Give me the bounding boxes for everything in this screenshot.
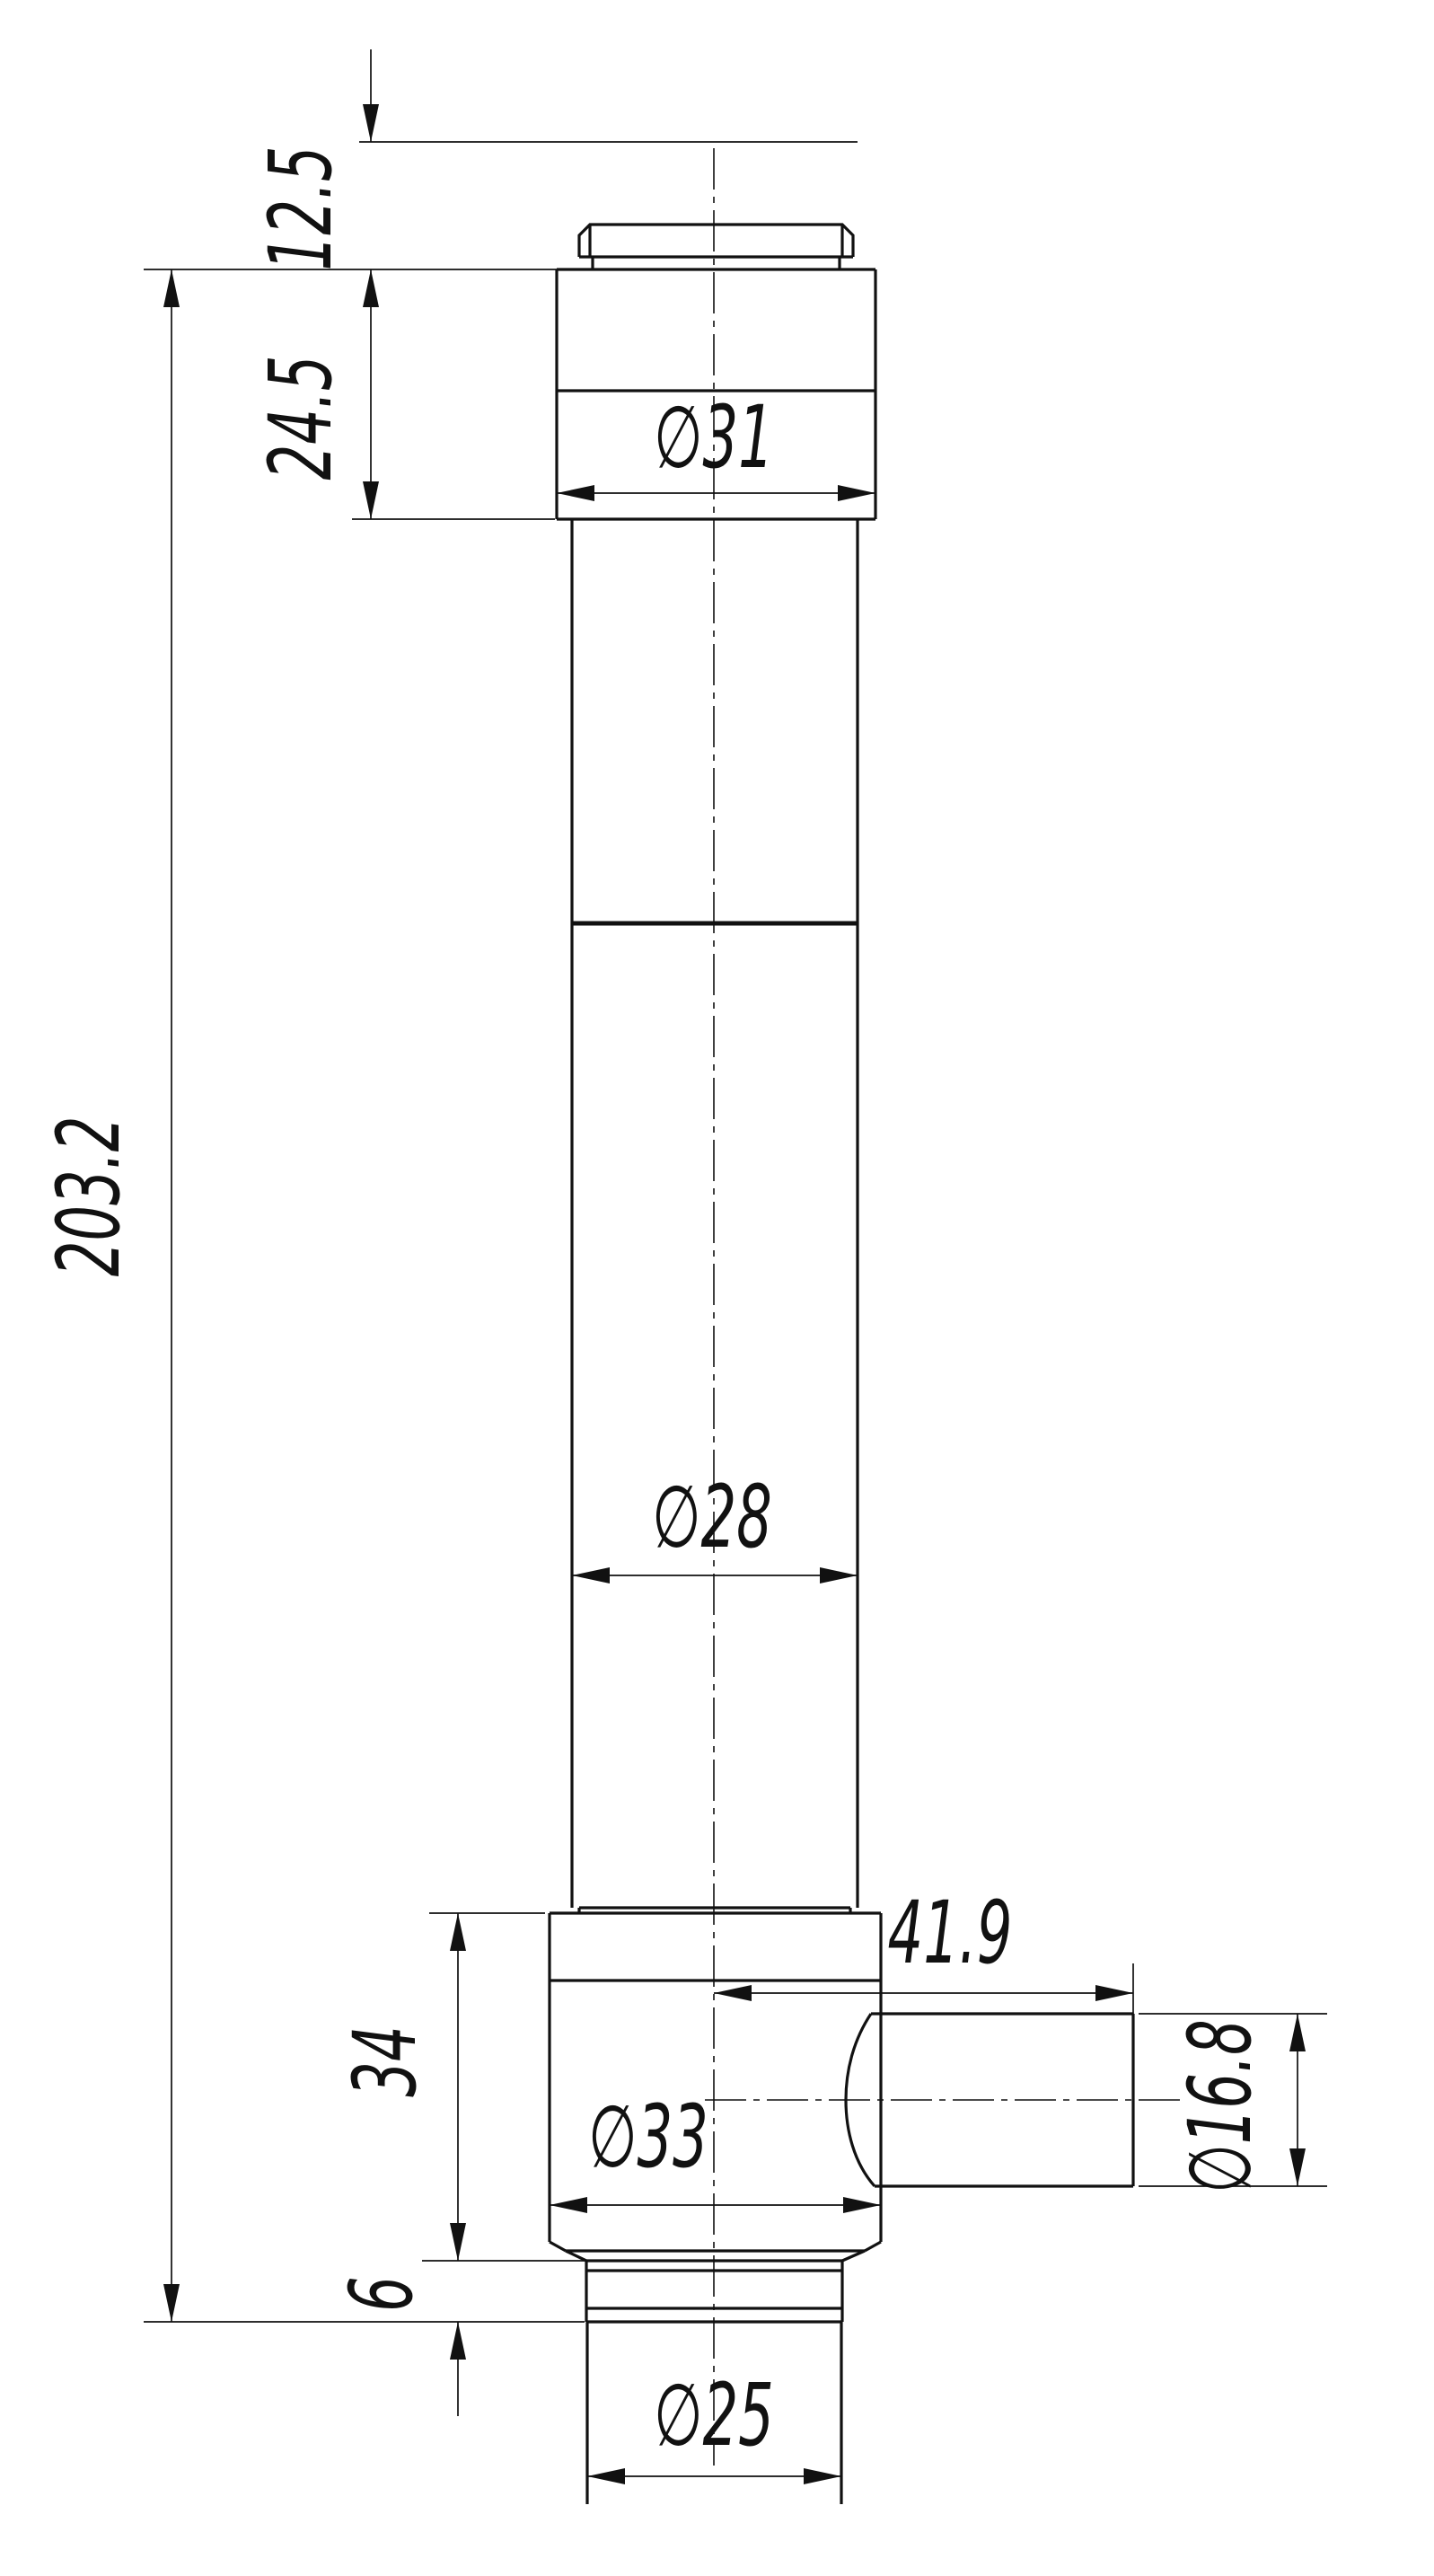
technical-drawing: 12.5 24.5 ∅31 203.2 ∅28 41.9 [0, 0, 1434, 2576]
dim-lower-block-height-label: 34 [336, 2025, 435, 2096]
dim-cap-height-label: 12.5 [251, 146, 351, 271]
part-tube [572, 519, 858, 1913]
dim-upper-block-height-label: 24.5 [251, 356, 351, 481]
dim-upper-block-diameter: ∅31 [557, 388, 875, 501]
centerlines [705, 148, 1181, 2466]
part-top-cap [579, 225, 853, 269]
technical-drawing-page: 12.5 24.5 ∅31 203.2 ∅28 41.9 [0, 0, 1434, 2576]
dim-overall-height: 203.2 [40, 269, 180, 2322]
dim-lower-block-diameter: ∅33 [550, 2087, 881, 2213]
dim-stub-diameter-label: ∅25 [654, 2366, 774, 2466]
dim-flange-height-label: 6 [332, 2276, 432, 2312]
dim-port-diameter: ∅16.8 [1171, 2014, 1306, 2193]
dim-tube-diameter: ∅28 [572, 1468, 858, 1584]
dim-port-length: 41.9 [714, 1883, 1133, 2001]
dim-port-diameter-label: ∅16.8 [1171, 2019, 1271, 2192]
dim-upper-block-height: 24.5 [251, 269, 379, 519]
dim-flange-height: 6 [332, 2276, 466, 2416]
dim-stub-diameter: ∅25 [587, 2366, 841, 2484]
dim-port-length-label: 41.9 [888, 1883, 1013, 1983]
dim-cap-height: 12.5 [251, 49, 379, 270]
dim-upper-block-diameter-label: ∅31 [654, 388, 774, 488]
dim-lower-block-height: 34 [336, 1913, 466, 2261]
dim-lower-block-diameter-label: ∅33 [588, 2087, 708, 2187]
dim-tube-diameter-label: ∅28 [652, 1468, 772, 1567]
dim-overall-height-label: 203.2 [40, 1116, 139, 1277]
